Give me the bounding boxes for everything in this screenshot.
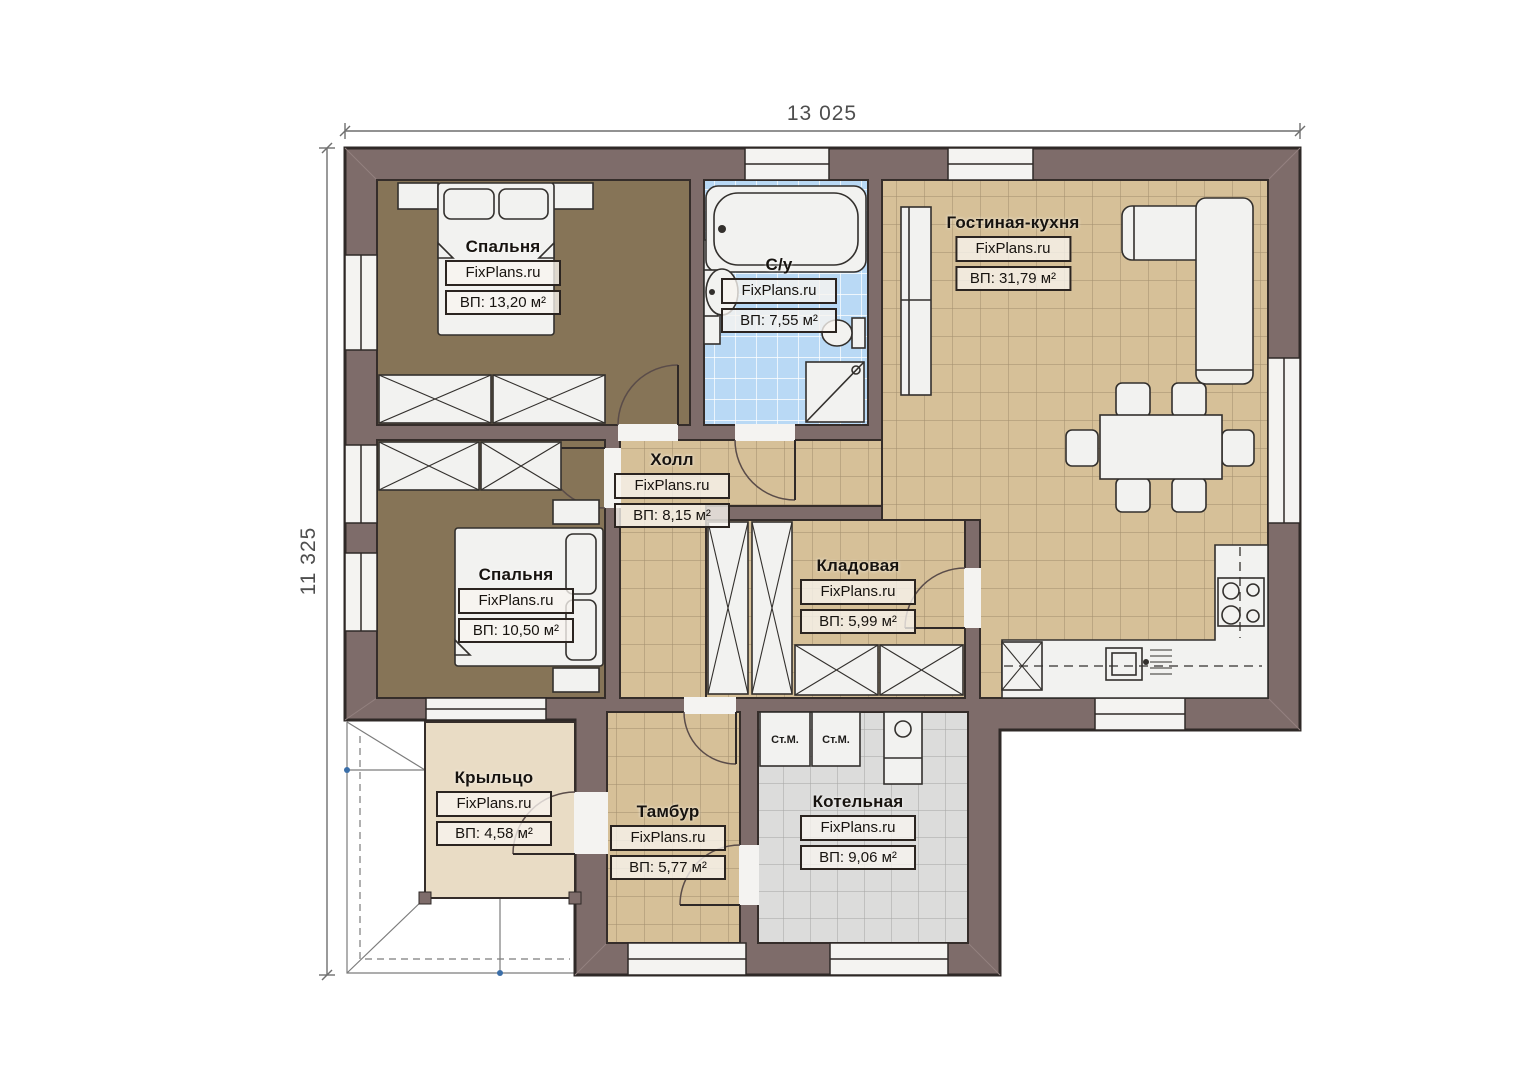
watermark: FixPlans.ru — [955, 236, 1071, 262]
watermark: FixPlans.ru — [800, 815, 916, 841]
dining-table — [1100, 415, 1222, 479]
window-bedroom-2-left-2 — [345, 553, 377, 631]
room-label-vestibule: Тамбур FixPlans.ru ВП: 5,77 м² — [610, 802, 726, 880]
room-name: С/у — [765, 255, 792, 275]
nightstand — [553, 183, 593, 209]
room-area: ВП: 7,55 м² — [721, 308, 837, 334]
window-top-living — [948, 148, 1033, 180]
watermark: FixPlans.ru — [721, 278, 837, 304]
room-area: ВП: 5,99 м² — [800, 609, 916, 635]
room-area: ВП: 4,58 м² — [436, 821, 552, 847]
room-area: ВП: 31,79 м² — [955, 266, 1071, 292]
watermark: FixPlans.ru — [436, 791, 552, 817]
boiler-unit — [884, 712, 922, 784]
room-name: Гостиная-кухня — [946, 213, 1079, 233]
room-area: ВП: 13,20 м² — [445, 290, 561, 316]
room-name: Тамбур — [637, 802, 700, 822]
window-living-right — [1268, 358, 1300, 523]
room-name: Холл — [650, 450, 693, 470]
room-name: Кладовая — [816, 556, 899, 576]
floor-plan-stage: 13 025 11 325 Спальня FixPlans.ru ВП: 13… — [0, 0, 1528, 1080]
room-name: Спальня — [466, 237, 541, 257]
nightstand — [553, 500, 599, 524]
watermark: FixPlans.ru — [614, 473, 730, 499]
watermark: FixPlans.ru — [610, 825, 726, 851]
window-boiler-bottom — [830, 943, 948, 975]
room-area: ВП: 5,77 м² — [610, 855, 726, 881]
chair — [1172, 383, 1206, 417]
chair — [1172, 478, 1206, 512]
room-label-bathroom: С/у FixPlans.ru ВП: 7,55 м² — [721, 255, 837, 333]
chair — [1222, 430, 1254, 466]
window-bedroom-2-left-1 — [345, 445, 377, 523]
room-area: ВП: 8,15 м² — [614, 503, 730, 529]
washing-machine-1-label: Ст.М. — [771, 734, 799, 746]
chair — [1066, 430, 1098, 466]
toilet-tank — [852, 318, 865, 348]
room-label-storage: Кладовая FixPlans.ru ВП: 5,99 м² — [800, 556, 916, 634]
nightstand — [553, 668, 599, 692]
room-name: Крыльцо — [455, 768, 534, 788]
window-vestibule-bottom — [628, 943, 746, 975]
dimension-height-label: 11 325 — [297, 527, 321, 596]
cabinet — [901, 207, 931, 395]
window-bedroom-2-porch — [426, 698, 546, 720]
window-top-bathroom — [745, 148, 829, 180]
room-label-bedroom-1: Спальня FixPlans.ru ВП: 13,20 м² — [445, 237, 561, 315]
window-bedroom-1-left — [345, 255, 377, 350]
nightstand — [398, 183, 438, 209]
watermark: FixPlans.ru — [458, 588, 574, 614]
room-label-porch: Крыльцо FixPlans.ru ВП: 4,58 м² — [436, 768, 552, 846]
pillow — [444, 189, 494, 219]
watermark: FixPlans.ru — [445, 260, 561, 286]
room-label-bedroom-2: Спальня FixPlans.ru ВП: 10,50 м² — [458, 565, 574, 643]
chair — [1116, 383, 1150, 417]
room-name: Котельная — [813, 792, 904, 812]
chair — [1116, 478, 1150, 512]
floor-plan-canvas — [0, 0, 1528, 1080]
room-name: Спальня — [479, 565, 554, 585]
room-area: ВП: 10,50 м² — [458, 618, 574, 644]
window-kitchen-bottom — [1095, 698, 1185, 730]
washing-machine-2-label: Ст.М. — [822, 734, 850, 746]
room-area: ВП: 9,06 м² — [800, 845, 916, 871]
room-label-living-kitchen: Гостиная-кухня FixPlans.ru ВП: 31,79 м² — [946, 213, 1079, 291]
sofa-chaise — [1196, 198, 1253, 384]
dimension-width-label: 13 025 — [787, 102, 857, 126]
room-label-boiler-room: Котельная FixPlans.ru ВП: 9,06 м² — [800, 792, 916, 870]
pillow — [499, 189, 548, 219]
room-label-hall: Холл FixPlans.ru ВП: 8,15 м² — [614, 450, 730, 528]
watermark: FixPlans.ru — [800, 579, 916, 605]
